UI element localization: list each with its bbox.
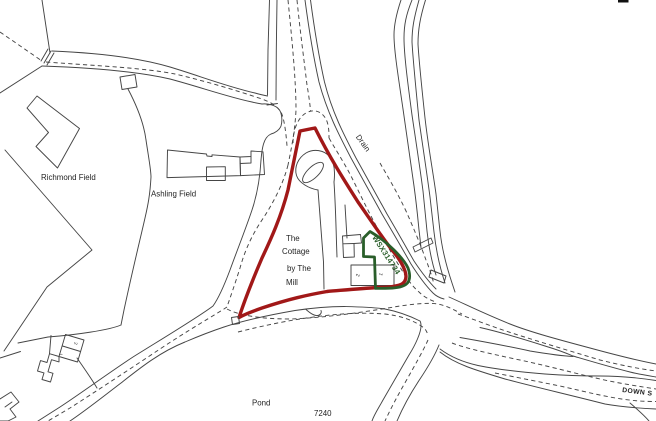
svg-text:The: The — [286, 234, 300, 243]
svg-text:by The: by The — [287, 264, 312, 273]
svg-text:Cottage: Cottage — [282, 247, 310, 256]
svg-text:Ashling Field: Ashling Field — [151, 190, 196, 199]
svg-text:Pond: Pond — [252, 399, 270, 408]
svg-text:7240: 7240 — [314, 409, 332, 418]
svg-text:Richmond Field: Richmond Field — [41, 173, 96, 182]
svg-text:Mill: Mill — [286, 278, 298, 287]
